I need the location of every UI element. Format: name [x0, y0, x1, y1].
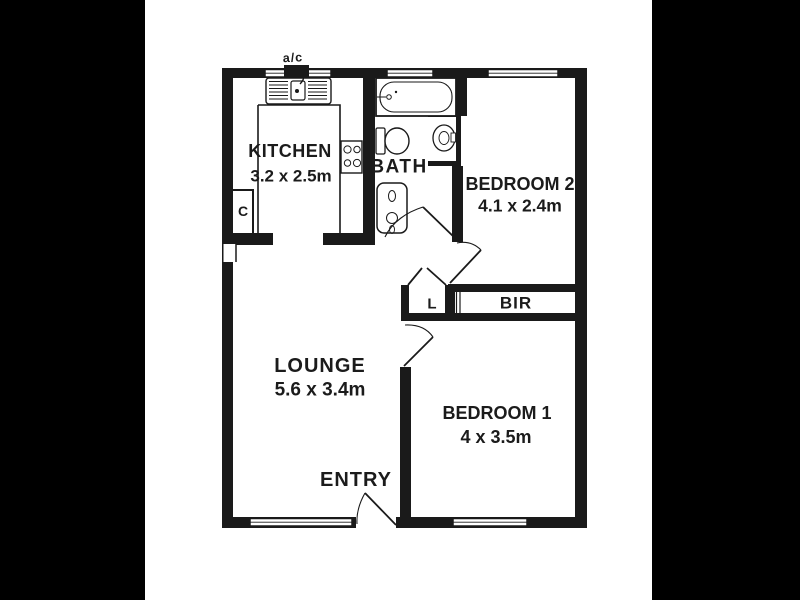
floorplan-image: a/c KITCHEN 3.2 x 2.5m BATH BEDROOM 2 4.… [0, 0, 800, 600]
window-bath [387, 70, 433, 78]
washbasin [433, 125, 456, 151]
room-label-bath: BATH [370, 158, 427, 177]
ac-label: a/c [282, 51, 303, 65]
window-kitchen-left [265, 70, 285, 78]
room-label-bir: BIR [500, 295, 532, 312]
linen-bifold-doors [408, 268, 446, 285]
door-swing-bedroom2 [450, 242, 481, 283]
room-dims-kitchen: 3.2 x 2.5m [250, 168, 331, 185]
bir-doors [457, 292, 461, 313]
room-label-bedroom1: BEDROOM 1 [442, 404, 551, 422]
window-lounge [250, 519, 352, 527]
room-label-linen: L [427, 297, 436, 312]
toilet [376, 128, 409, 154]
room-label-entry: ENTRY [320, 470, 392, 490]
room-dims-bedroom1: 4 x 3.5m [460, 428, 531, 446]
bathtub [376, 78, 456, 116]
room-label-lounge: LOUNGE [274, 356, 366, 376]
window-kitchen-right [308, 70, 331, 78]
wall-notch [224, 244, 237, 262]
floorplan-drawing [0, 0, 800, 600]
room-label-cupboard: C [238, 204, 248, 218]
door-swing-bedroom1 [404, 325, 433, 366]
room-label-bedroom2: BEDROOM 2 [465, 175, 574, 193]
window-bedroom2 [488, 70, 558, 78]
window-bedroom1 [453, 519, 527, 527]
room-dims-bedroom2: 4.1 x 2.4m [478, 197, 562, 215]
room-label-kitchen: KITCHEN [248, 142, 332, 160]
stove-cooktop [341, 141, 362, 173]
room-dims-lounge: 5.6 x 3.4m [275, 381, 366, 400]
